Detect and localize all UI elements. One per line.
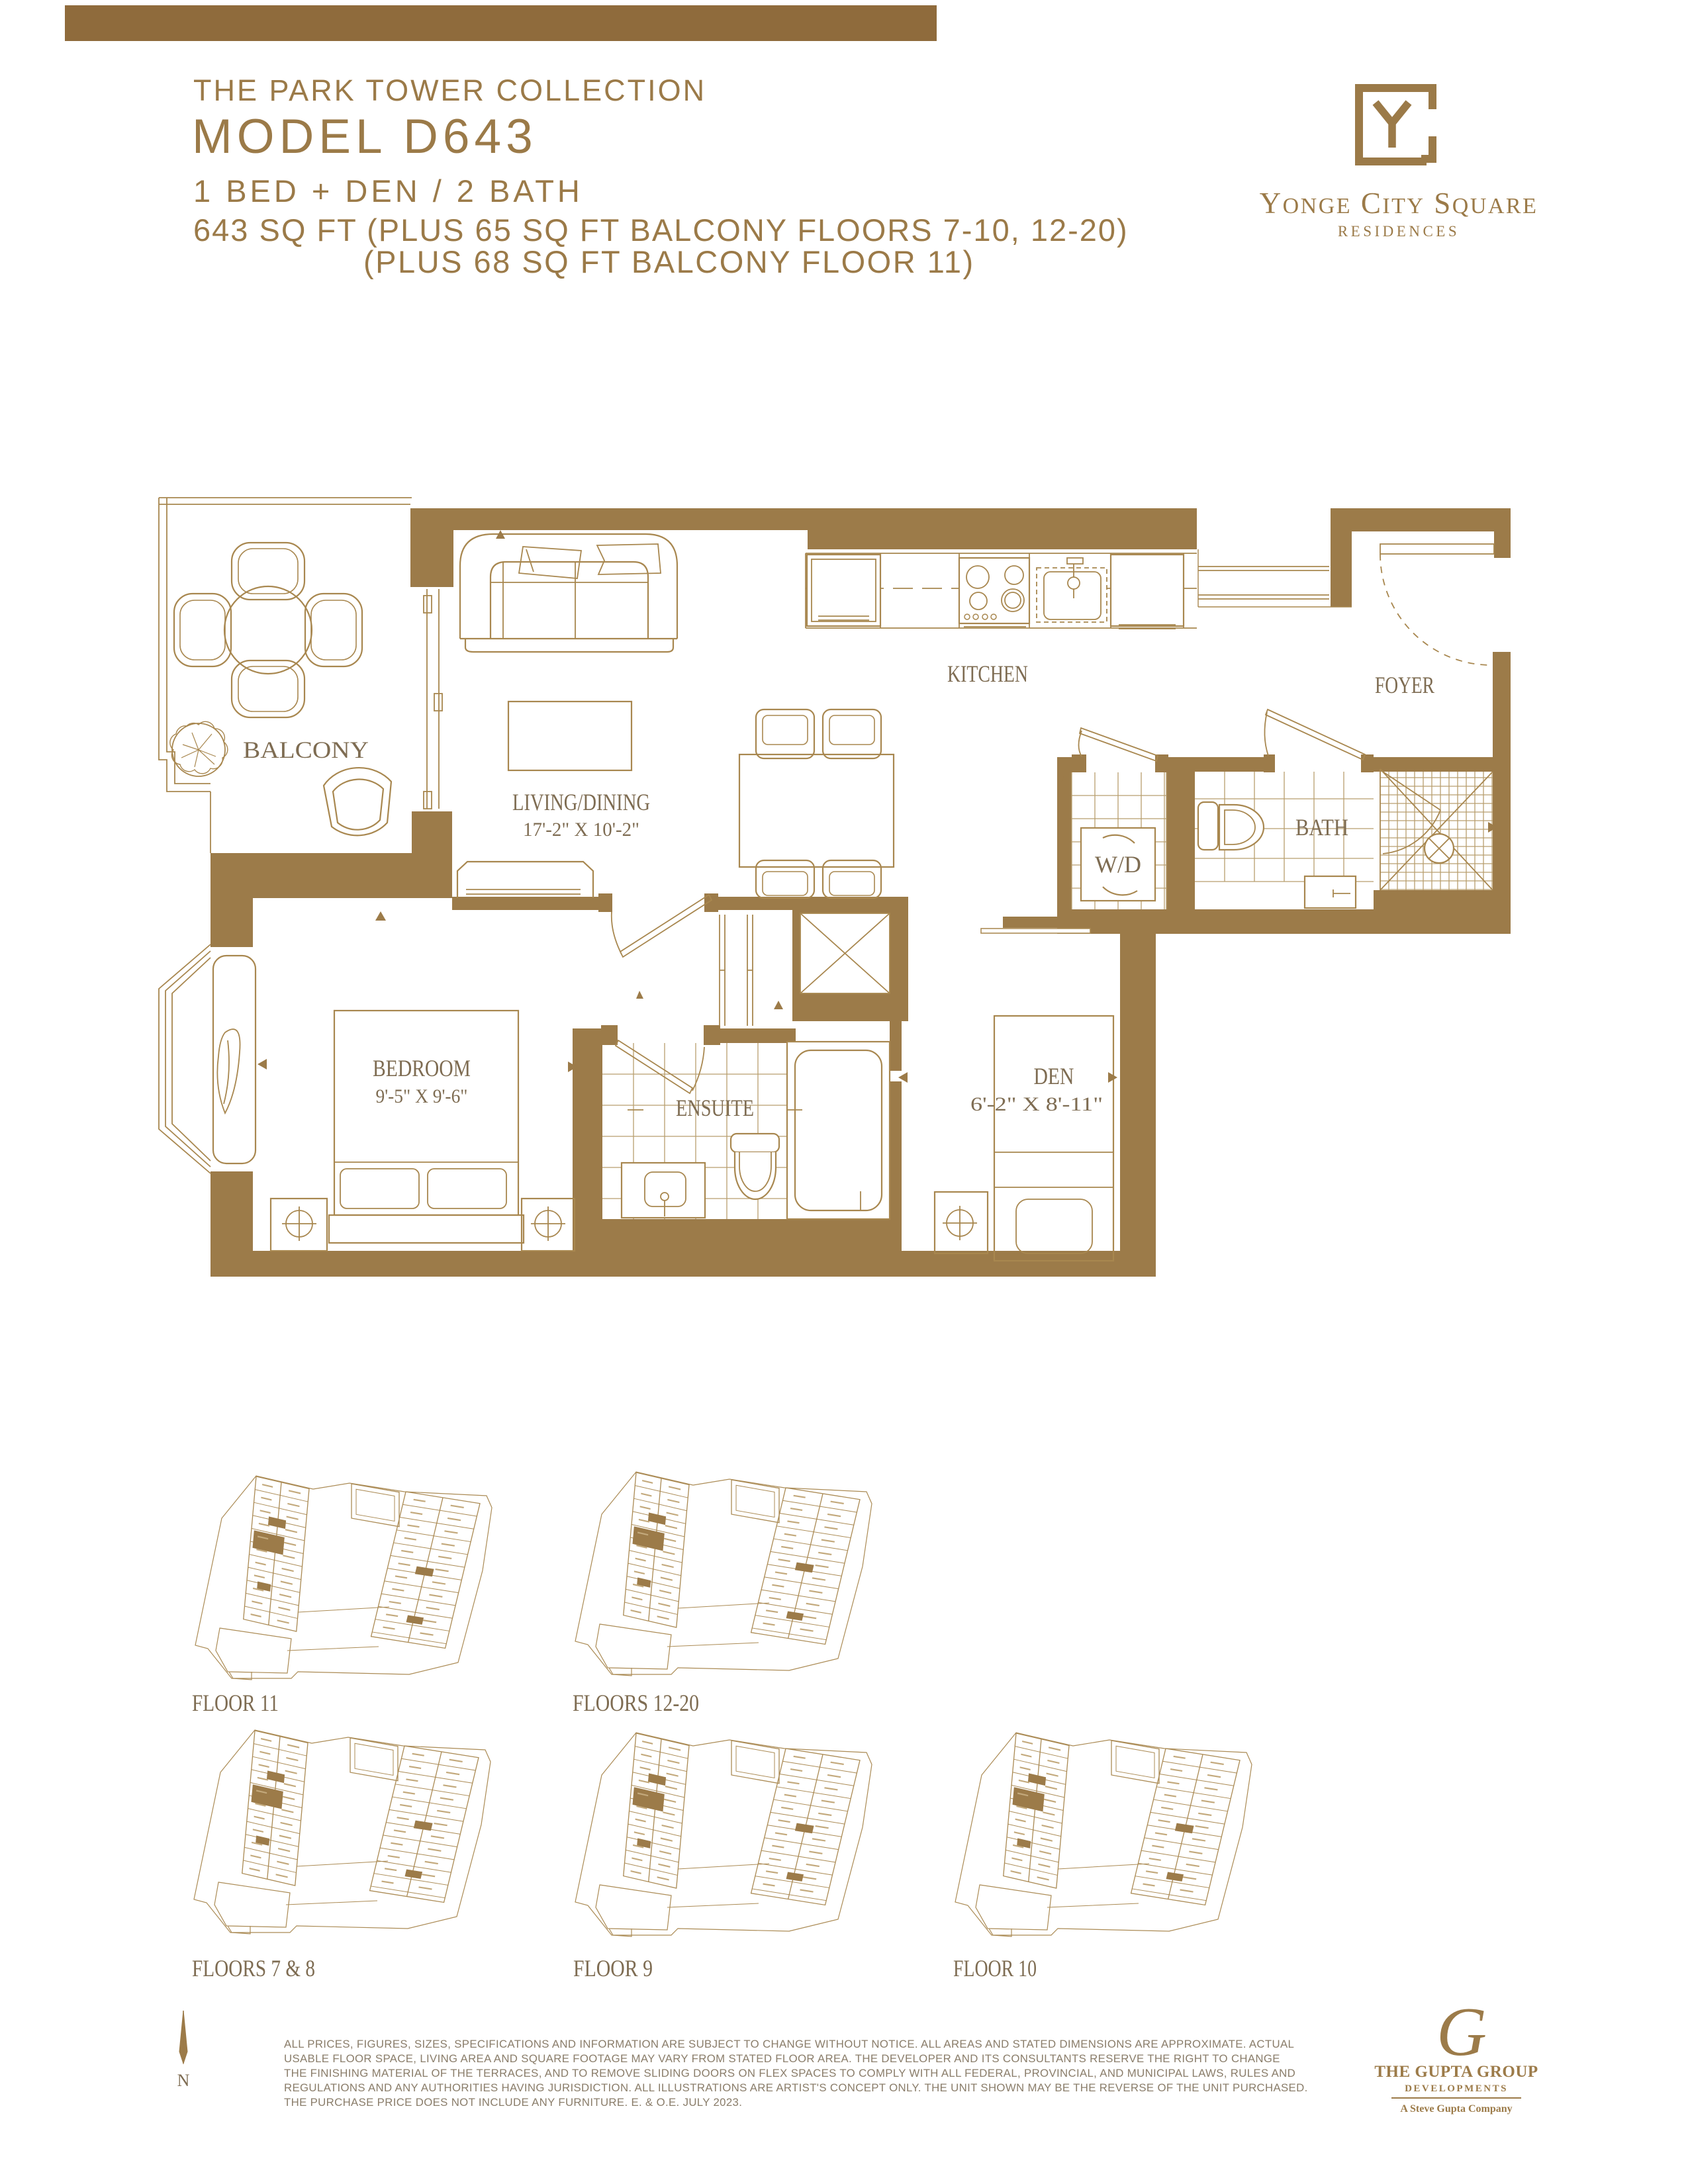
svg-text:643 SQ FT (PLUS 65 SQ FT BALCO: 643 SQ FT (PLUS 65 SQ FT BALCONY FLOORS …	[193, 212, 1129, 248]
svg-text:FLOORS 12-20: FLOORS 12-20	[573, 1690, 699, 1716]
svg-text:THE PARK TOWER COLLECTION: THE PARK TOWER COLLECTION	[193, 73, 706, 107]
svg-text:17'-2" X 10'-2": 17'-2" X 10'-2"	[523, 819, 639, 841]
svg-text:DEVELOPMENTS: DEVELOPMENTS	[1405, 2083, 1508, 2094]
svg-text:KITCHEN: KITCHEN	[947, 660, 1028, 687]
svg-text:FOYER: FOYER	[1375, 672, 1434, 698]
svg-text:ALL PRICES, FIGURES, SIZES, SP: ALL PRICES, FIGURES, SIZES, SPECIFICATIO…	[284, 2038, 1294, 2050]
svg-text:DEN: DEN	[1034, 1063, 1074, 1089]
svg-text:ENSUITE: ENSUITE	[676, 1095, 754, 1121]
svg-text:THE GUPTA GROUP: THE GUPTA GROUP	[1374, 2063, 1538, 2081]
svg-text:N: N	[177, 2071, 190, 2090]
svg-text:FLOOR 10: FLOOR 10	[953, 1955, 1037, 1981]
svg-text:6'-2" X 8'-11": 6'-2" X 8'-11"	[970, 1093, 1103, 1115]
svg-text:REGULATIONS AND ANY AUTHORITIE: REGULATIONS AND ANY AUTHORITIES HAVING J…	[284, 2081, 1308, 2094]
svg-text:FLOOR 9: FLOOR 9	[573, 1955, 653, 1981]
svg-text:MODEL D643: MODEL D643	[192, 110, 538, 163]
svg-text:THE PURCHASE PRICE DOES NOT IN: THE PURCHASE PRICE DOES NOT INCLUDE ANY …	[284, 2096, 742, 2109]
svg-text:9'-5" X 9'-6": 9'-5" X 9'-6"	[376, 1085, 468, 1107]
svg-text:RESIDENCES: RESIDENCES	[1338, 223, 1460, 240]
svg-text:1 BED + DEN / 2 BATH: 1 BED + DEN / 2 BATH	[193, 173, 583, 208]
svg-text:BALCONY: BALCONY	[243, 737, 369, 763]
svg-text:FLOOR 11: FLOOR 11	[192, 1690, 279, 1716]
svg-text:YONGE CITY SQUARE: YONGE CITY SQUARE	[1260, 187, 1538, 220]
svg-text:(PLUS 68 SQ FT BALCONY FLOOR 1: (PLUS 68 SQ FT BALCONY FLOOR 11)	[363, 244, 975, 279]
svg-text:THE FINISHING MATERIAL OF THE: THE FINISHING MATERIAL OF THE TERRACES, …	[284, 2067, 1295, 2079]
svg-text:W/D: W/D	[1095, 851, 1141, 878]
svg-text:G: G	[1436, 1993, 1487, 2070]
svg-text:A Steve Gupta Company: A Steve Gupta Company	[1400, 2103, 1512, 2115]
svg-text:BATH: BATH	[1295, 814, 1348, 841]
svg-text:LIVING/DINING: LIVING/DINING	[512, 789, 650, 815]
svg-text:FLOORS 7 & 8: FLOORS 7 & 8	[192, 1955, 315, 1981]
svg-text:BEDROOM: BEDROOM	[373, 1055, 471, 1081]
svg-text:USABLE FLOOR SPACE, LIVING ARE: USABLE FLOOR SPACE, LIVING AREA AND SQUA…	[284, 2052, 1280, 2065]
